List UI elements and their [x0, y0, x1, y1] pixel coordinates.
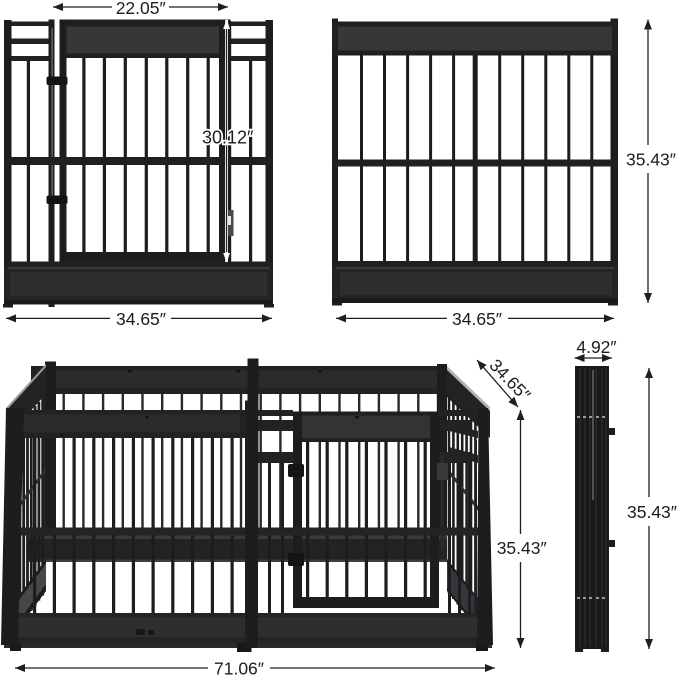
svg-text:71.06″: 71.06″ [214, 659, 264, 677]
svg-text:34.65″: 34.65″ [452, 309, 502, 329]
svg-text:22.05″: 22.05″ [116, 0, 166, 18]
svg-text:4.92″: 4.92″ [576, 337, 616, 357]
svg-text:30.12″: 30.12″ [202, 128, 254, 148]
svg-text:35.43″: 35.43″ [627, 502, 677, 522]
svg-text:34.65″: 34.65″ [116, 309, 166, 329]
svg-text:35.43″: 35.43″ [626, 150, 676, 170]
svg-text:35.43″: 35.43″ [497, 538, 547, 558]
